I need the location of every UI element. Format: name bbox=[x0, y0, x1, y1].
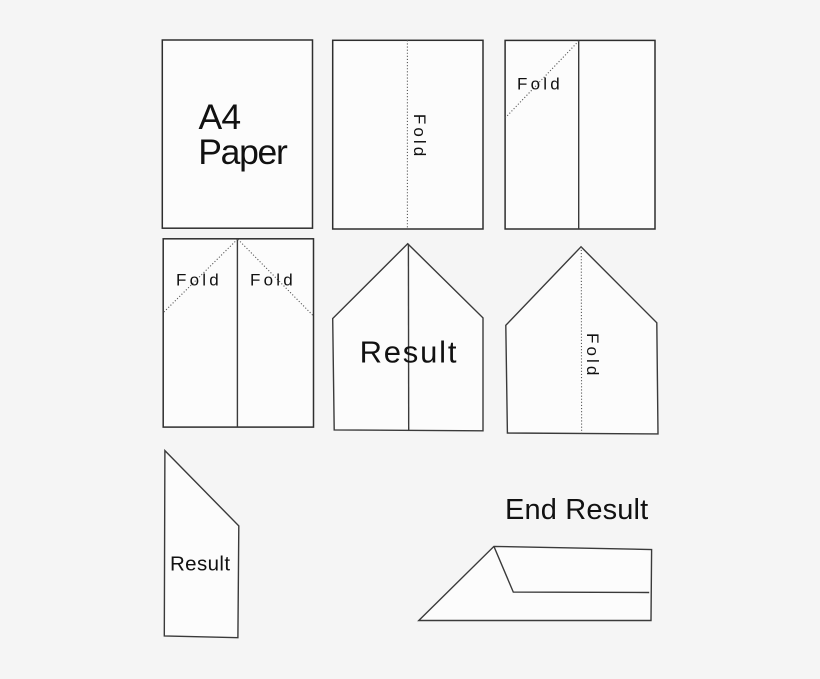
svg-text:A4: A4 bbox=[199, 97, 241, 137]
svg-text:Fold: Fold bbox=[517, 74, 563, 93]
svg-text:Fold: Fold bbox=[583, 333, 602, 378]
svg-text:Result: Result bbox=[360, 335, 459, 370]
svg-text:Fold: Fold bbox=[410, 114, 429, 159]
svg-text:Fold: Fold bbox=[250, 270, 296, 289]
svg-text:End Result: End Result bbox=[505, 494, 648, 526]
svg-text:Result: Result bbox=[170, 552, 231, 575]
svg-text:Paper: Paper bbox=[198, 132, 288, 172]
svg-text:Fold: Fold bbox=[176, 270, 222, 289]
